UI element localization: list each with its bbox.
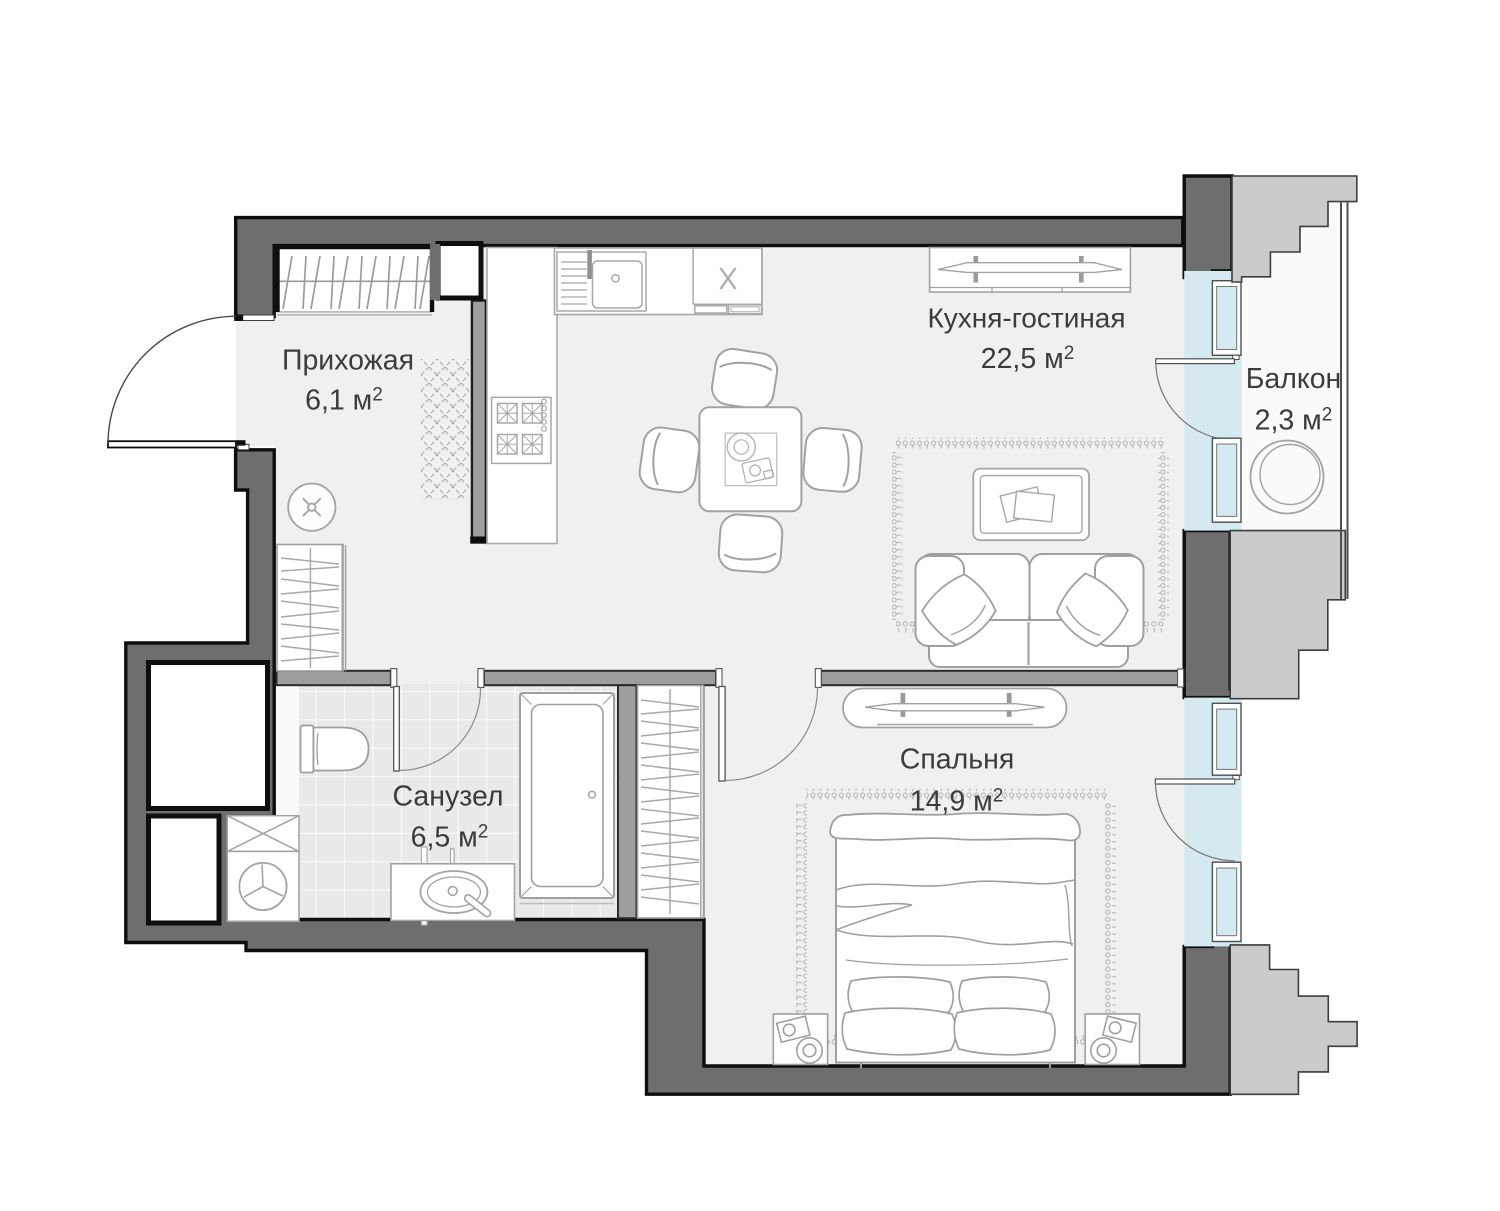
svg-text:Спальня: Спальня xyxy=(900,744,1015,776)
svg-text:Балкон: Балкон xyxy=(1246,363,1342,395)
svg-text:22,5 м2: 22,5 м2 xyxy=(981,343,1075,375)
svg-text:6,1 м2: 6,1 м2 xyxy=(305,385,383,417)
svg-text:Кухня-гостиная: Кухня-гостиная xyxy=(927,303,1125,334)
svg-text:Санузел: Санузел xyxy=(392,781,503,813)
svg-text:Прихожая: Прихожая xyxy=(282,345,414,377)
svg-text:2,3 м2: 2,3 м2 xyxy=(1255,405,1333,437)
svg-text:6,5 м2: 6,5 м2 xyxy=(411,822,489,854)
svg-text:14,9 м2: 14,9 м2 xyxy=(910,786,1004,818)
